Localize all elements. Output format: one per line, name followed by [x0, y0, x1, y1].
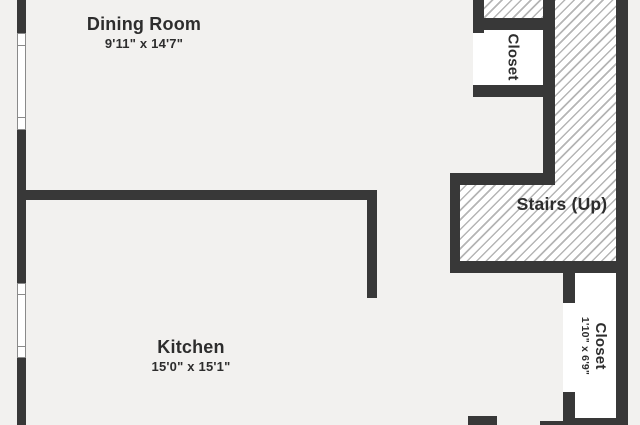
lower-closet-bottom-wall [563, 418, 628, 425]
upper-closet-left-wall [473, 0, 484, 33]
window-frame-line [18, 45, 25, 46]
kitchen-dimensions: 15'0" x 15'1" [91, 360, 291, 375]
lower-closet-left-wall-upper [563, 273, 575, 303]
kitchen-bottom-wall-stub [468, 416, 497, 425]
dining-room-label: Dining Room 9'11" x 14'7" [44, 14, 244, 52]
kitchen-wall-vertical [367, 190, 377, 298]
lower-closet-dimensions: 1'10" x 6'9" [579, 317, 591, 375]
stairs-left-wall [450, 173, 460, 263]
stairs-top-wall [450, 173, 555, 185]
upper-hatch-strip [484, 0, 543, 18]
window-frame-line [18, 294, 25, 295]
dining-room-window [17, 33, 26, 130]
stairs-label: Stairs (Up) [462, 194, 640, 214]
dining-room-name: Dining Room [44, 14, 244, 35]
room-divider-wall-horizontal [17, 190, 376, 200]
upper-closet-name: Closet [504, 33, 521, 80]
upper-closet-label: Closet [504, 33, 521, 80]
dining-room-dimensions: 9'11" x 14'7" [44, 37, 244, 52]
window-frame-line [18, 346, 25, 347]
kitchen-label: Kitchen 15'0" x 15'1" [91, 337, 291, 375]
lower-closet-name: Closet [592, 317, 609, 375]
lower-closet-label: Closet 1'10" x 6'9" [579, 317, 609, 375]
stairs-bottom-wall [450, 261, 628, 273]
floorplan: Dining Room 9'11" x 14'7" Kitchen 15'0" … [0, 0, 640, 425]
window-frame-line [18, 117, 25, 118]
upper-closet-right-wall [543, 0, 555, 185]
stairs-name: Stairs (Up) [462, 194, 640, 214]
kitchen-window [17, 283, 26, 358]
bottom-wall-thin-segment [540, 421, 563, 425]
kitchen-name: Kitchen [91, 337, 291, 358]
